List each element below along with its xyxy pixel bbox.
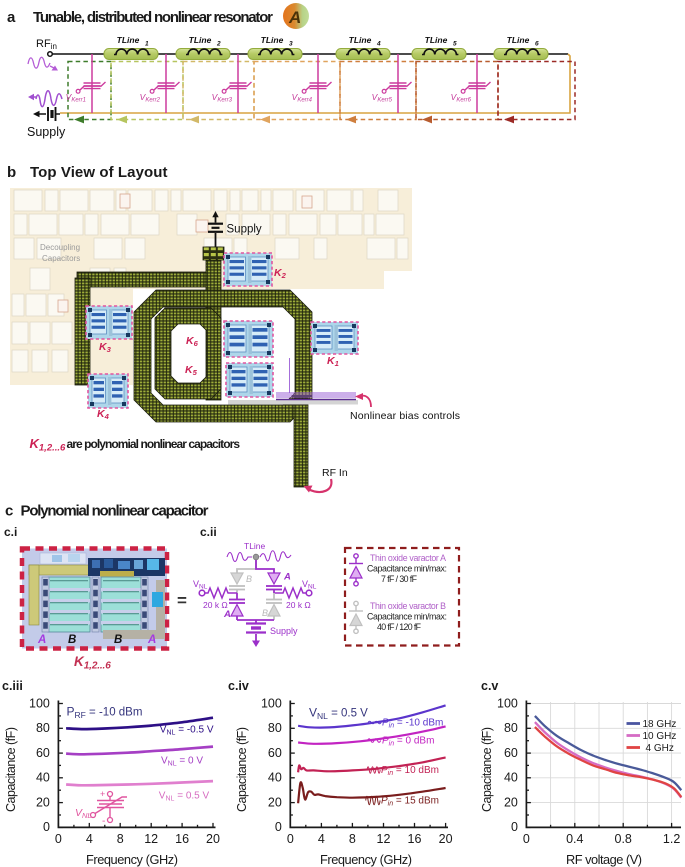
svg-text:16: 16 <box>175 832 189 846</box>
svg-text:are polynomial nonlinear capac: are polynomial nonlinear capacitors <box>67 437 241 451</box>
svg-text:VNL: VNL <box>75 807 92 820</box>
svg-text:a: a <box>7 9 16 26</box>
svg-text:B: B <box>262 608 268 618</box>
svg-text:+: + <box>100 789 105 799</box>
svg-text:A: A <box>283 572 291 583</box>
svg-text:Thin oxide varactor A: Thin oxide varactor A <box>370 553 446 563</box>
svg-text:Pin = 15 dBm: Pin = 15 dBm <box>381 796 439 808</box>
svg-text:12: 12 <box>144 832 158 846</box>
svg-text:A: A <box>37 634 46 646</box>
svg-text:7 fF / 30 fF: 7 fF / 30 fF <box>381 574 418 584</box>
svg-text:0: 0 <box>511 820 518 834</box>
svg-text:4: 4 <box>86 832 93 846</box>
svg-text:0: 0 <box>287 832 294 846</box>
svg-text:Supply: Supply <box>27 125 66 139</box>
svg-text:8: 8 <box>349 832 356 846</box>
svg-text:c.i: c.i <box>4 525 17 539</box>
svg-text:0: 0 <box>523 832 530 846</box>
svg-text:B: B <box>246 574 252 584</box>
svg-text:80: 80 <box>504 721 518 735</box>
svg-text:0: 0 <box>275 820 282 834</box>
svg-text:c: c <box>5 503 13 520</box>
svg-text:TLine: TLine <box>189 35 212 45</box>
svg-text:RFin: RFin <box>36 38 57 51</box>
svg-text:1: 1 <box>145 41 149 48</box>
svg-text:c.iii: c.iii <box>2 679 23 693</box>
svg-text:Capacitance (fF): Capacitance (fF) <box>4 727 18 812</box>
svg-text:40: 40 <box>504 771 518 785</box>
svg-text:0: 0 <box>43 820 50 834</box>
svg-text:TLine: TLine <box>349 35 372 45</box>
svg-text:VKerr5: VKerr5 <box>372 92 393 104</box>
svg-text:8: 8 <box>117 832 124 846</box>
svg-text:18 GHz: 18 GHz <box>643 719 677 730</box>
svg-text:K5: K5 <box>185 364 198 377</box>
svg-text:60: 60 <box>504 746 518 760</box>
svg-text:16: 16 <box>408 832 422 846</box>
svg-text:Capacitance (fF): Capacitance (fF) <box>480 727 494 812</box>
svg-text:A: A <box>147 634 156 646</box>
svg-text:4: 4 <box>318 832 325 846</box>
svg-text:20: 20 <box>504 795 518 809</box>
svg-text:6: 6 <box>535 41 539 48</box>
svg-text:Top View of Layout: Top View of Layout <box>30 164 168 181</box>
svg-text:Capacitance min/max:: Capacitance min/max: <box>367 612 447 622</box>
svg-text:Capacitance min/max:: Capacitance min/max: <box>367 564 447 574</box>
svg-text:Frequency (GHz): Frequency (GHz) <box>320 852 412 867</box>
svg-text:VKerr4: VKerr4 <box>292 92 313 104</box>
svg-text:20: 20 <box>268 795 282 809</box>
svg-text:12: 12 <box>377 832 391 846</box>
svg-text:K1,2...6: K1,2...6 <box>74 654 111 672</box>
svg-text:Capacitance (fF): Capacitance (fF) <box>235 727 249 812</box>
svg-text:2: 2 <box>216 41 221 48</box>
svg-text:100: 100 <box>261 696 282 710</box>
svg-text:TLine: TLine <box>425 35 448 45</box>
svg-text:TLine: TLine <box>117 35 140 45</box>
svg-text:VNL: VNL <box>193 579 208 591</box>
svg-text:60: 60 <box>36 746 50 760</box>
svg-text:1.2: 1.2 <box>663 832 680 846</box>
svg-text:c.iv: c.iv <box>228 679 249 693</box>
svg-text:VNL = 0.5 V: VNL = 0.5 V <box>309 706 368 722</box>
svg-text:40 fF / 120 fF: 40 fF / 120 fF <box>377 622 422 632</box>
svg-text:Supply: Supply <box>270 626 298 636</box>
svg-text:PRF = -10 dBm: PRF = -10 dBm <box>67 705 143 721</box>
svg-text:Capacitors: Capacitors <box>42 254 80 263</box>
svg-text:0.4: 0.4 <box>566 832 583 846</box>
svg-text:RF In: RF In <box>322 467 348 479</box>
svg-text:VNL = 0 V: VNL = 0 V <box>161 756 203 768</box>
svg-text:K4: K4 <box>97 408 110 421</box>
svg-text:c.v: c.v <box>481 679 498 693</box>
svg-text:VKerr6: VKerr6 <box>451 92 472 104</box>
svg-text:A: A <box>288 8 301 27</box>
svg-text:3: 3 <box>289 41 293 48</box>
svg-text:80: 80 <box>268 721 282 735</box>
svg-text:=: = <box>177 591 187 610</box>
svg-text:VKerr3: VKerr3 <box>212 92 233 104</box>
svg-text:-: - <box>102 816 105 827</box>
svg-text:0: 0 <box>55 832 62 846</box>
svg-text:5: 5 <box>453 41 457 48</box>
svg-text:VNL: VNL <box>302 579 317 591</box>
svg-text:80: 80 <box>36 721 50 735</box>
svg-text:Thin oxide varactor B: Thin oxide varactor B <box>370 601 446 611</box>
svg-text:K1: K1 <box>327 355 339 368</box>
svg-text:20 k Ω: 20 k Ω <box>286 600 311 610</box>
svg-text:VKerr2: VKerr2 <box>140 92 161 104</box>
svg-text:c.ii: c.ii <box>200 525 217 539</box>
svg-text:VNL = 0.5 V: VNL = 0.5 V <box>159 791 210 803</box>
svg-text:b: b <box>7 164 16 181</box>
svg-text:A: A <box>223 609 231 620</box>
svg-text:RF voltage (V): RF voltage (V) <box>566 852 642 867</box>
svg-text:B: B <box>114 634 122 646</box>
svg-text:Frequency (GHz): Frequency (GHz) <box>86 852 178 867</box>
svg-text:B: B <box>68 634 76 646</box>
svg-text:4: 4 <box>376 41 381 48</box>
svg-text:K1,2...6: K1,2...6 <box>30 436 67 454</box>
svg-text:Nonlinear bias controls: Nonlinear bias controls <box>350 410 460 422</box>
svg-text:Decoupling: Decoupling <box>40 243 80 252</box>
svg-text:100: 100 <box>29 696 50 710</box>
svg-text:20: 20 <box>206 832 220 846</box>
svg-text:TLine: TLine <box>244 541 266 551</box>
svg-text:0.8: 0.8 <box>615 832 632 846</box>
svg-text:Polynomial nonlinear capacitor: Polynomial nonlinear capacitor <box>21 503 209 520</box>
svg-text:TLine: TLine <box>507 35 530 45</box>
svg-text:100: 100 <box>497 696 518 710</box>
svg-text:10 GHz: 10 GHz <box>643 731 677 742</box>
svg-text:40: 40 <box>268 771 282 785</box>
svg-text:20: 20 <box>36 795 50 809</box>
svg-text:VNL = -0.5 V: VNL = -0.5 V <box>160 725 214 737</box>
svg-text:60: 60 <box>268 746 282 760</box>
svg-text:4 GHz: 4 GHz <box>646 743 674 754</box>
svg-text:Supply: Supply <box>227 224 262 236</box>
svg-text:VKerr1: VKerr1 <box>66 92 86 104</box>
svg-text:TLine: TLine <box>261 35 284 45</box>
svg-text:Tunable, distributed nonlinear: Tunable, distributed nonlinear resonator <box>33 9 273 26</box>
svg-text:20: 20 <box>439 832 453 846</box>
svg-text:K6: K6 <box>186 335 199 348</box>
svg-text:40: 40 <box>36 771 50 785</box>
